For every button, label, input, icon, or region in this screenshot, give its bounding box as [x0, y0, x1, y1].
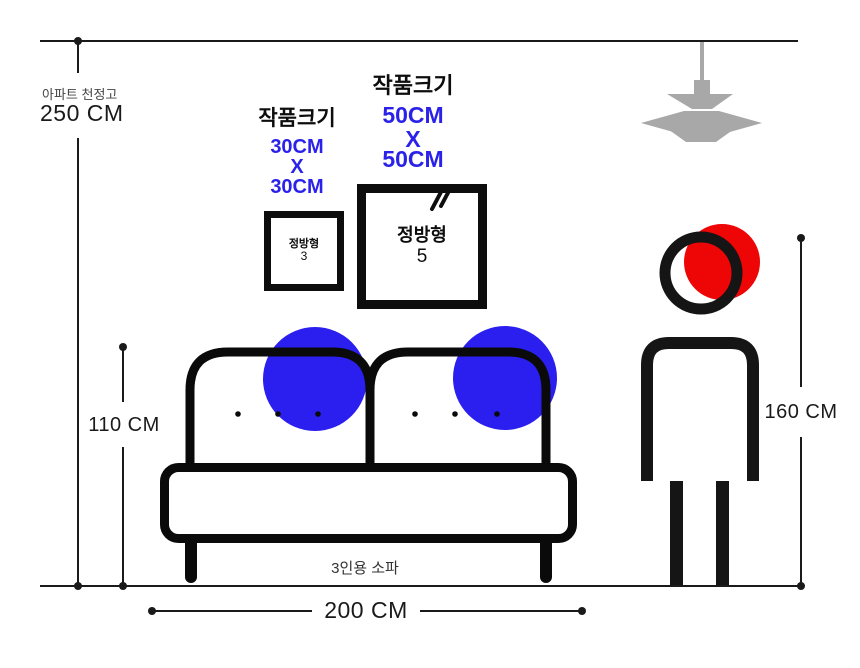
- frame5-glare-icon: [432, 189, 450, 209]
- lamp-cord: [700, 42, 704, 82]
- measure-dot: [578, 607, 586, 615]
- lamp-socket: [694, 80, 710, 94]
- ceiling-height-measure: [74, 37, 82, 590]
- sofa-button: [315, 411, 321, 417]
- person-height-measure: [797, 234, 805, 590]
- sofa-base: [165, 468, 573, 539]
- sofa-button: [494, 411, 500, 417]
- sofa-width-measure: [148, 607, 586, 615]
- measure-dot: [119, 582, 127, 590]
- person-leg-left: [670, 481, 683, 585]
- measure-dot: [797, 582, 805, 590]
- sofa-button: [275, 411, 281, 417]
- sofa-button: [412, 411, 418, 417]
- size-guide-diagram: 아파트 천정고 250 CM 작품크기 30CM X 30CM 작품크기 50C…: [0, 0, 860, 668]
- person-body: [647, 343, 753, 481]
- sofa-button: [452, 411, 458, 417]
- pendant-lamp-icon: [641, 42, 762, 142]
- lamp-shade-top: [667, 94, 733, 109]
- sofa: [165, 326, 573, 577]
- person-figure: [647, 224, 760, 585]
- diagram-canvas: [0, 0, 860, 668]
- person-leg-right: [716, 481, 729, 585]
- measure-dot: [74, 582, 82, 590]
- sofa-height-measure: [119, 343, 127, 590]
- sofa-button: [235, 411, 241, 417]
- lamp-shade-bottom: [665, 127, 737, 142]
